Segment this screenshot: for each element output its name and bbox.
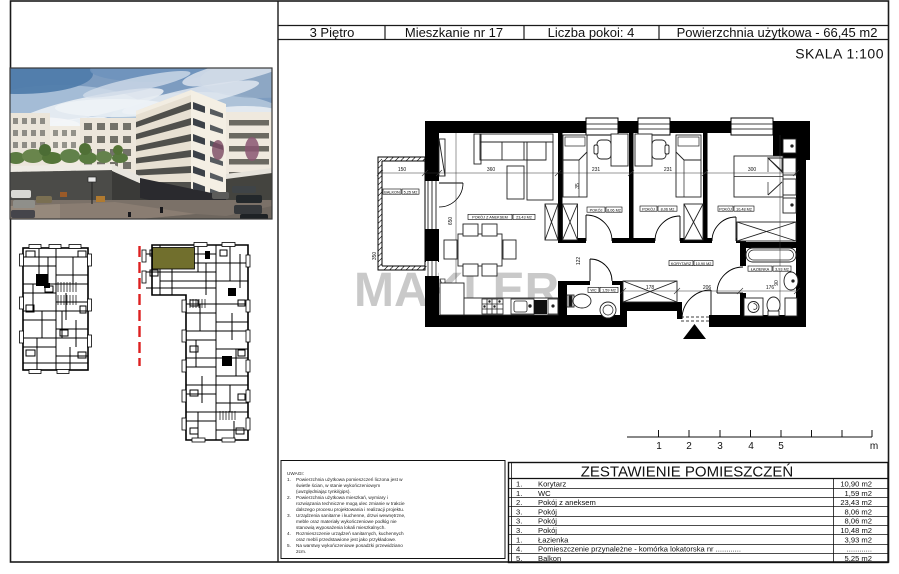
svg-text:Mieszkanie nr 17: Mieszkanie nr 17 [405,25,503,40]
svg-text:świetle ścian, w stanie wykońc: świetle ścian, w stanie wykończeniowym [296,483,380,488]
svg-text:Powierzchnia użytkowa - 66,45: Powierzchnia użytkowa - 66,45 m2 [677,25,878,40]
svg-text:1,59 M2: 1,59 M2 [602,289,616,293]
svg-text:231: 231 [592,167,601,173]
svg-text:2.: 2. [287,495,291,500]
svg-text:Korytarz: Korytarz [538,480,566,489]
svg-text:Pokój: Pokój [538,526,557,535]
svg-text:10,90 m2: 10,90 m2 [840,480,872,489]
svg-text:3.: 3. [516,507,522,516]
svg-text:UWAGI:: UWAGI: [287,471,304,476]
svg-text:1: 1 [656,441,662,452]
svg-text:2: 2 [686,441,692,452]
svg-text:10,48 M2: 10,48 M2 [736,207,752,211]
svg-text:POKÓJ: POKÓJ [719,206,732,211]
svg-text:5.: 5. [287,543,291,548]
svg-text:4: 4 [748,441,754,452]
svg-text:(uwzględniając tynki/gips).: (uwzględniając tynki/gips). [296,489,351,494]
svg-text:300: 300 [748,167,757,173]
svg-text:POKÓJ: POKÓJ [642,206,655,211]
svg-text:5,25 m2: 5,25 m2 [845,554,872,563]
svg-text:WC: WC [590,289,597,293]
svg-text:3.: 3. [516,517,522,526]
svg-text:meble oraz materiały wykończen: meble oraz materiały wykończeniowe podłó… [296,519,397,524]
svg-text:8,06 M2: 8,06 M2 [607,208,621,212]
svg-text:3.: 3. [287,513,291,518]
svg-text:1.: 1. [287,477,291,482]
svg-text:dalszego procesu projektowania: dalszego procesu projektowania i realiza… [296,507,404,512]
svg-text:1.: 1. [516,489,522,498]
svg-text:oraz mebli przedstawione jest: oraz mebli przedstawione jest jako przyk… [296,537,396,542]
svg-text:3,93 m2: 3,93 m2 [845,535,872,544]
svg-text:Pokój z aneksem: Pokój z aneksem [538,498,596,507]
svg-text:Łazienka: Łazienka [538,535,569,544]
svg-text:4.: 4. [287,531,291,536]
svg-text:1.: 1. [516,535,522,544]
svg-text:3,93 M2: 3,93 M2 [775,267,789,271]
svg-text:POKÓJ Z ANEKSEM: POKÓJ Z ANEKSEM [472,215,508,220]
svg-text:1,59 m2: 1,59 m2 [845,489,872,498]
svg-text:POKÓJ: POKÓJ [590,207,603,212]
svg-text:2.: 2. [516,498,522,507]
svg-text:35: 35 [575,183,581,189]
svg-text:WC: WC [538,489,551,498]
svg-text:5: 5 [778,441,784,452]
svg-text:stanowią wyposażenia lokali mi: stanowią wyposażenia lokali mieszkalnych… [296,525,386,530]
svg-text:4.: 4. [516,545,522,554]
svg-text:10,48 m2: 10,48 m2 [840,526,872,535]
svg-text:Rozmieszczenie urządzeń sanita: Rozmieszczenie urządzeń sanitarnych, kuc… [296,531,404,536]
svg-text:Powierzchnia użytkowa mieszkań: Powierzchnia użytkowa mieszkań, wymiary … [296,495,388,500]
svg-text:ŁAZIENKA: ŁAZIENKA [751,267,770,271]
svg-text:8,06 m2: 8,06 m2 [845,507,872,516]
svg-text:............: ............ [847,545,872,554]
svg-text:5.: 5. [516,554,522,563]
svg-text:Pokój: Pokój [538,517,557,526]
svg-text:23,43 m2: 23,43 m2 [840,498,872,507]
svg-text:Na warstwy wykończeniowe posad: Na warstwy wykończeniowe posadzki przewi… [296,543,403,548]
svg-text:8,06 m2: 8,06 m2 [845,517,872,526]
svg-text:90: 90 [774,280,780,286]
svg-text:23,43 M2: 23,43 M2 [516,216,532,220]
svg-text:3: 3 [717,441,723,452]
svg-text:1.: 1. [516,480,522,489]
svg-text:150: 150 [398,167,407,173]
svg-text:178: 178 [646,285,655,291]
svg-text:Liczba pokoi: 4: Liczba pokoi: 4 [548,25,635,40]
svg-text:KORYTARZ: KORYTARZ [671,262,692,266]
svg-text:5,25 M2: 5,25 M2 [404,190,418,194]
svg-text:122: 122 [576,257,582,266]
svg-text:2cm.: 2cm. [296,549,306,554]
svg-text:360: 360 [487,167,496,173]
svg-text:10,90 M2: 10,90 M2 [696,262,712,266]
svg-text:Urządzenia sanitarne i kuchenn: Urządzenia sanitarne i kuchenne, drzwi w… [296,513,405,518]
svg-text:SKALA 1:100: SKALA 1:100 [795,46,884,62]
svg-text:Pokój: Pokój [538,507,557,516]
svg-text:rozwiązania techniczne mogą ul: rozwiązania techniczne mogą ulec zmianie… [296,501,405,506]
svg-text:206: 206 [703,285,712,291]
svg-text:350: 350 [372,252,378,261]
svg-text:Pomieszczenie przynależne - ko: Pomieszczenie przynależne - komórka loka… [538,545,741,554]
svg-text:m: m [870,441,878,452]
svg-text:BALKON: BALKON [384,190,400,194]
svg-text:3.: 3. [516,526,522,535]
svg-text:3 Piętro: 3 Piętro [310,25,355,40]
svg-text:650: 650 [448,217,454,226]
svg-text:ZESTAWIENIE POMIESZCZEŃ: ZESTAWIENIE POMIESZCZEŃ [581,464,794,481]
svg-text:Balkon: Balkon [538,554,561,563]
svg-text:8,06 M2: 8,06 M2 [661,207,675,211]
svg-text:Powierzchnia użytkowa pomieszc: Powierzchnia użytkowa pomieszczeń liczon… [296,477,403,482]
svg-text:231: 231 [664,167,673,173]
